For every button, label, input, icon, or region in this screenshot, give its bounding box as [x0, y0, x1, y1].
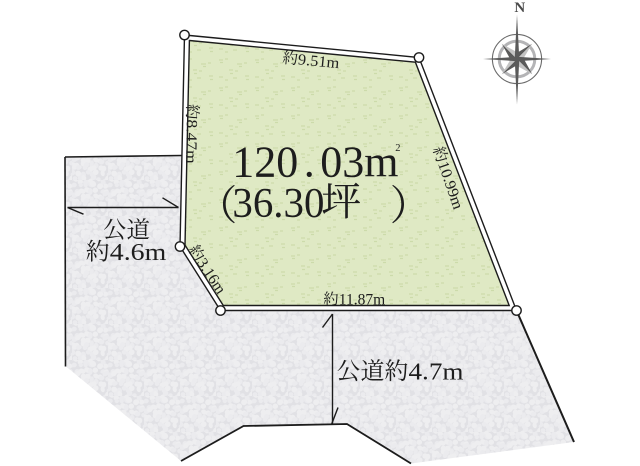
svg-text:4.7m: 4.7m — [409, 359, 464, 385]
svg-text:4.6m: 4.6m — [110, 240, 167, 266]
svg-text:36.30: 36.30 — [232, 180, 324, 227]
svg-text:03m: 03m — [320, 138, 398, 187]
svg-text:11.87m: 11.87m — [339, 291, 385, 308]
svg-text:2: 2 — [395, 143, 400, 154]
svg-text:8.47m: 8.47m — [182, 119, 200, 164]
svg-text:N: N — [514, 0, 525, 16]
